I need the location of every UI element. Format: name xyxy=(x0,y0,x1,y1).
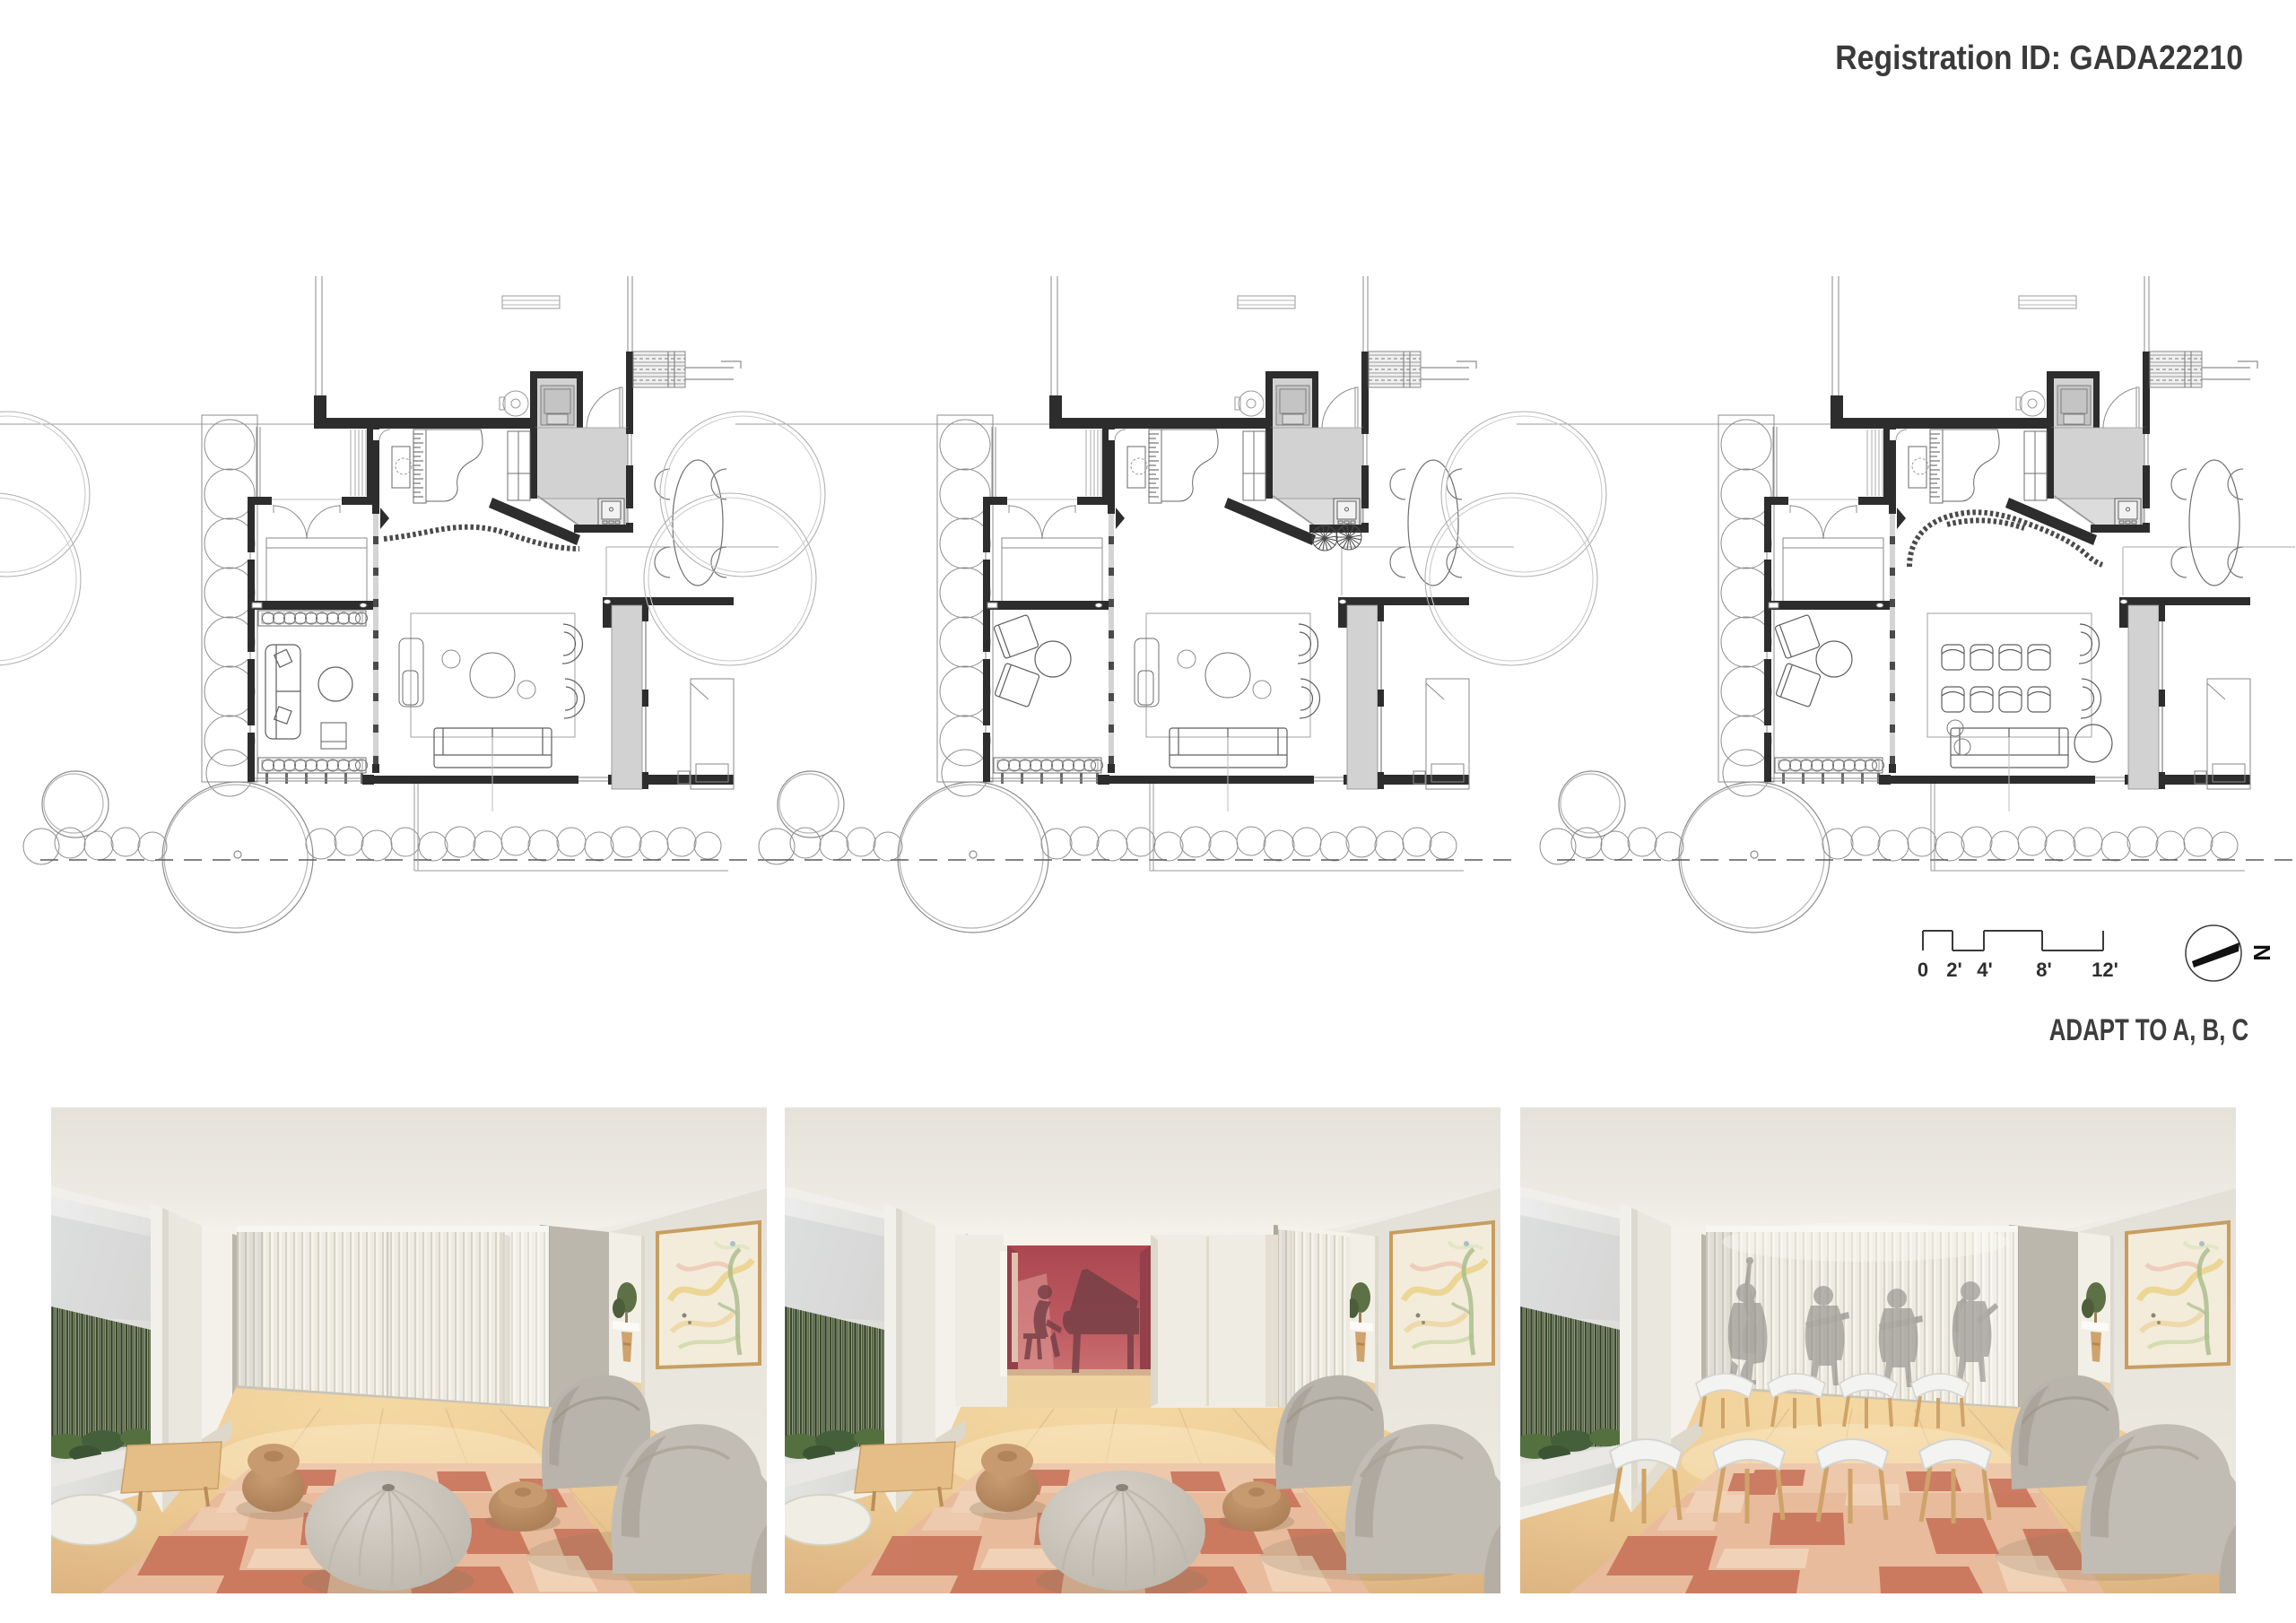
svg-text:4': 4' xyxy=(1977,959,1992,981)
svg-text:8': 8' xyxy=(2036,959,2051,981)
svg-text:ADAPT TO A, B, C: ADAPT TO A, B, C xyxy=(2049,1014,2248,1047)
svg-text:2': 2' xyxy=(1946,959,1961,981)
svg-text:0: 0 xyxy=(1918,959,1928,981)
svg-text:N: N xyxy=(2248,944,2275,961)
svg-text:12': 12' xyxy=(2092,959,2118,981)
svg-text:Registration ID: GADA22210: Registration ID: GADA22210 xyxy=(1835,38,2243,76)
